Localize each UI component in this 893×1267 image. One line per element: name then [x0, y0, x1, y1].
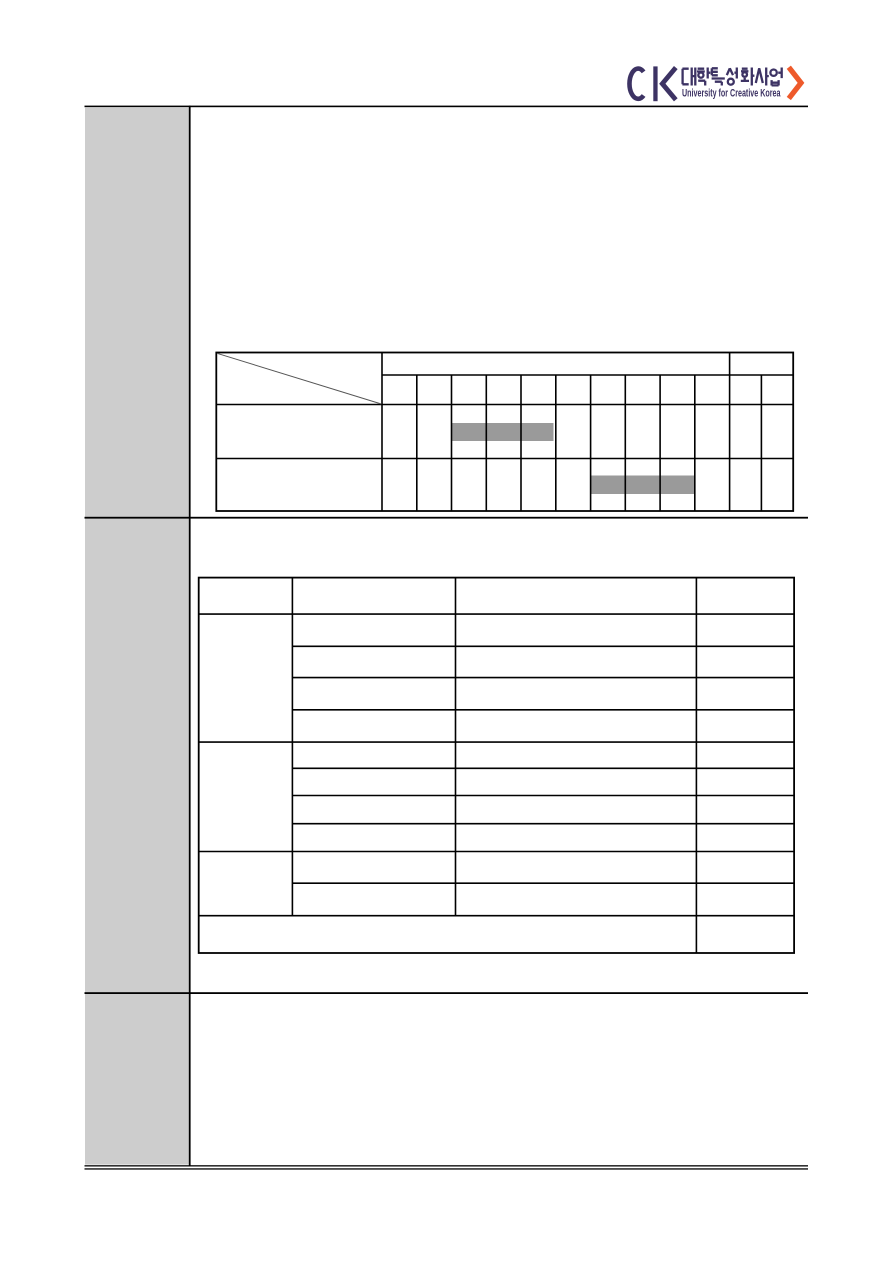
svg-text:University for Creative Korea: University for Creative Korea [682, 88, 781, 100]
